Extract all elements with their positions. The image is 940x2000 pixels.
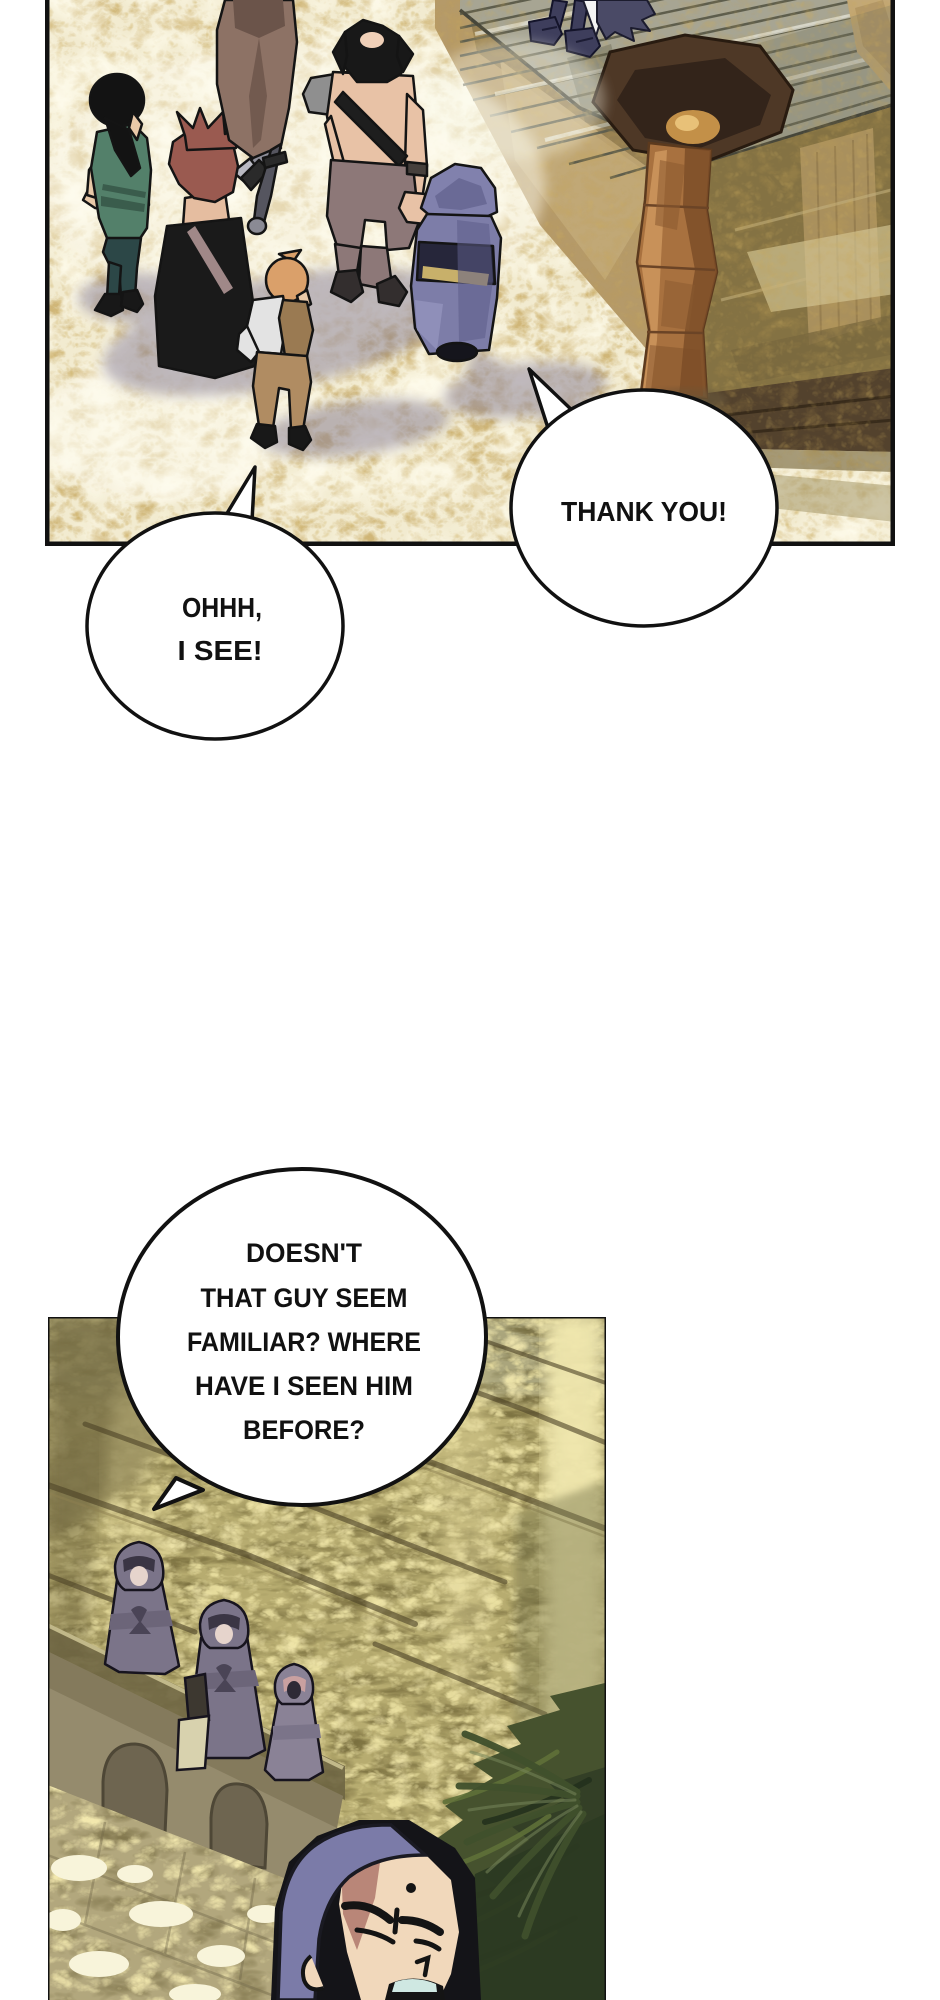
svg-text:OHHH,: OHHH, bbox=[182, 592, 262, 623]
svg-text:HAVE I SEEN HIM: HAVE I SEEN HIM bbox=[195, 1371, 413, 1401]
svg-text:BEFORE?: BEFORE? bbox=[243, 1415, 365, 1445]
svg-text:THAT GUY SEEM: THAT GUY SEEM bbox=[201, 1283, 408, 1313]
svg-text:I SEE!: I SEE! bbox=[178, 635, 263, 666]
svg-text:DOESN'T: DOESN'T bbox=[246, 1238, 362, 1268]
svg-text:THANK YOU!: THANK YOU! bbox=[561, 496, 727, 527]
svg-text:FAMILIAR? WHERE: FAMILIAR? WHERE bbox=[187, 1327, 421, 1357]
